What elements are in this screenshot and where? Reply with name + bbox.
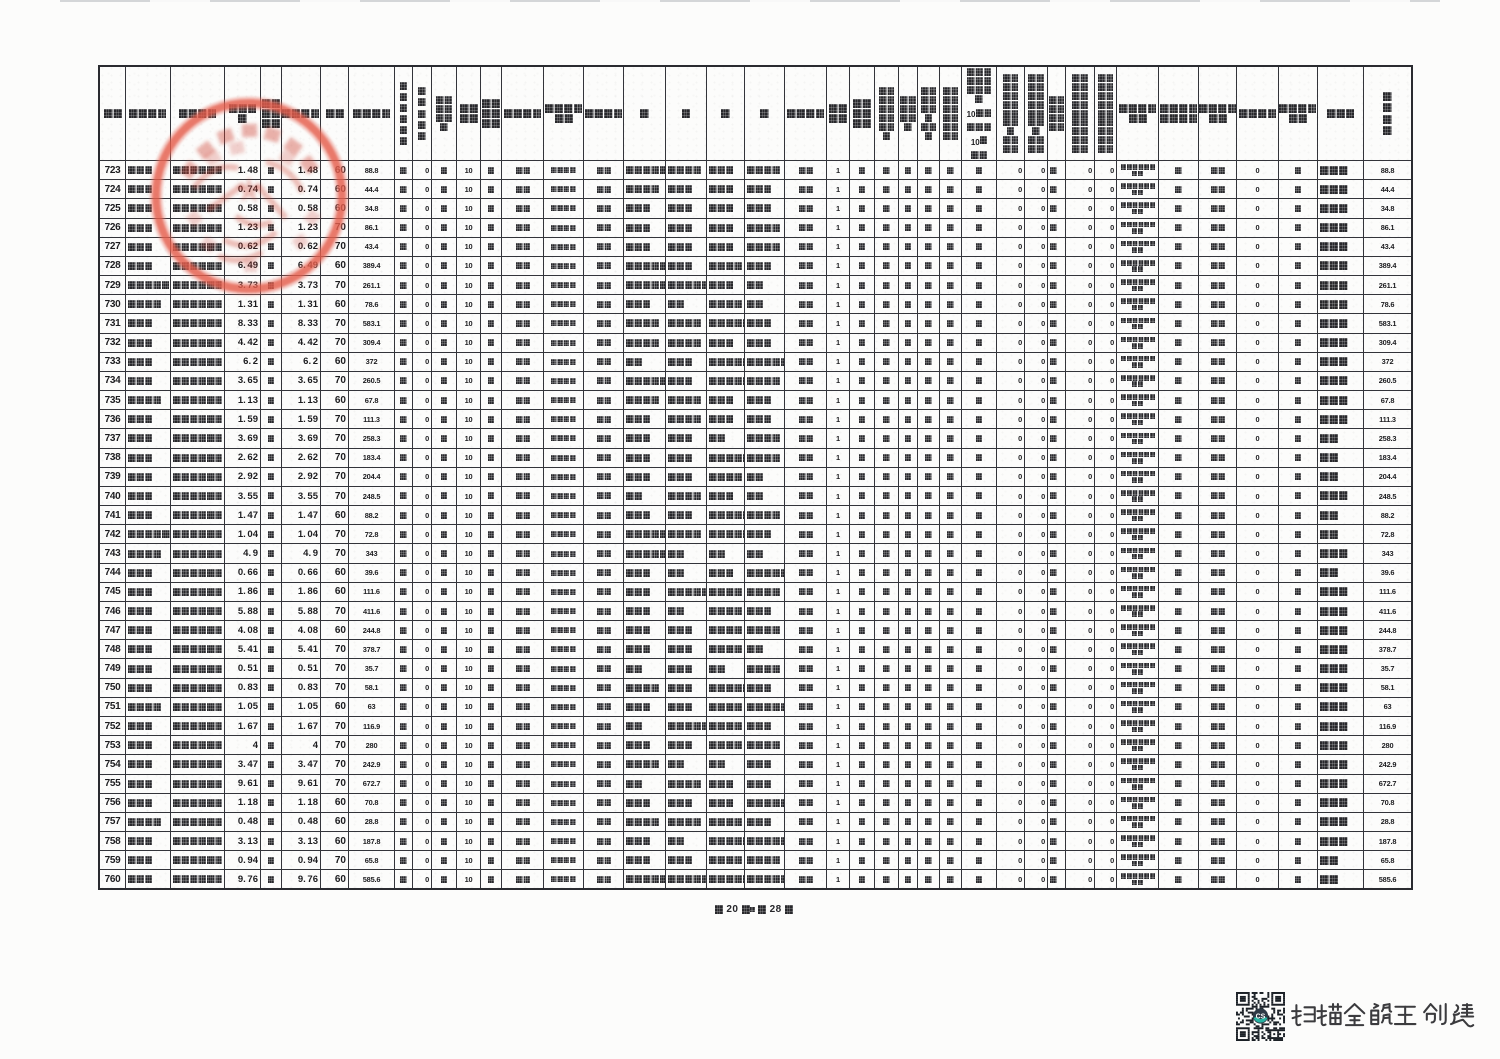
- svg-text:CS: CS: [1256, 1013, 1266, 1020]
